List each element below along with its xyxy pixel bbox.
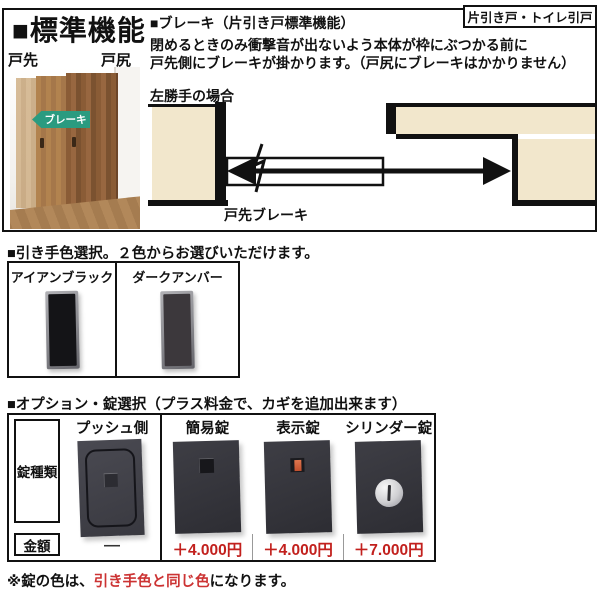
door-pull-mark <box>40 138 44 148</box>
handle-recess <box>48 294 77 367</box>
handle-option-iron-black: アイアンブラック <box>9 263 117 376</box>
simple-lock-image <box>173 440 241 534</box>
brake-diagram <box>140 96 600 228</box>
door-type-badge: 片引き戸・トイレ引戸 <box>463 5 597 28</box>
brake-tag-label: ブレーキ <box>45 112 87 127</box>
push-side-label: プッシュ側 <box>64 417 160 438</box>
right-jamb <box>512 134 518 200</box>
note-prefix: ※錠の色は、 <box>7 574 94 590</box>
lock-column-simple: 簡易錠 ＋4.000円 <box>162 415 253 560</box>
lock-option-heading: ■オプション・錠選択（プラス料金で、カギを追加出来ます） <box>7 393 406 414</box>
left-floor-line <box>148 200 228 206</box>
push-plate-ring <box>85 448 138 528</box>
push-button <box>103 472 117 486</box>
price-divider <box>252 534 253 560</box>
indicator-lock-image <box>264 440 332 534</box>
handle-option-dark-amber: ダークアンバー <box>117 263 238 376</box>
push-price: ― <box>64 537 160 555</box>
pocket-bottom-edge <box>396 134 518 139</box>
price-row-label: 金額 <box>14 533 60 556</box>
door-motion-ghost <box>36 76 70 210</box>
lock-thumbturn <box>199 458 214 473</box>
keyhole-slit <box>387 485 391 501</box>
push-plate-image <box>77 439 144 537</box>
note-suffix: になります。 <box>210 574 296 590</box>
right-wall-side <box>518 139 595 200</box>
handle-color-heading: ■引き手色選択。２色からお選びいただけます。 <box>7 242 319 263</box>
right-wall-top-edge <box>390 103 596 107</box>
note-highlight: 引き手色と同じ色 <box>94 574 210 590</box>
product-sheet: ■標準機能 片引き戸・トイレ引戸 ■ブレーキ（片引き戸標準機能） 閉めるときのみ… <box>0 0 600 600</box>
diagram-caption: 左勝手の場合 <box>150 86 234 106</box>
recessed-handle-image <box>45 291 80 370</box>
left-wall <box>152 105 215 200</box>
door-panel <box>66 73 118 213</box>
front-brake-label: 戸先ブレーキ <box>224 205 308 225</box>
page-title: ■標準機能 <box>12 9 146 49</box>
lock-name: 表示錠 <box>276 415 320 438</box>
handle-recess <box>163 294 192 367</box>
cylinder-lock-image <box>354 440 422 534</box>
left-jamb <box>215 102 226 200</box>
handle-option-label: アイアンブラック <box>9 263 115 286</box>
lock-columns: 簡易錠 ＋4.000円 表示錠 ＋4.000円 シリンダー錠 <box>162 415 434 560</box>
indicator-orange-bar <box>294 459 301 470</box>
lock-name: シリンダー錠 <box>345 415 432 438</box>
lock-name: 簡易錠 <box>186 415 230 438</box>
brake-arrow-tag: ブレーキ <box>32 111 90 128</box>
brake-description: 閉めるときのみ衝撃音が出ないよう本体が枠にぶつかる前に 戸先側にブレーキが掛かり… <box>150 37 575 72</box>
brake-description-line2: 戸先側にブレーキが掛かります。（戸尻にブレーキはかかりません） <box>150 55 575 73</box>
lock-option-table: 錠種類 金額 プッシュ側 ― 簡易錠 ＋4.000円 表示錠 <box>7 413 436 562</box>
lock-price: ＋7.000円 <box>354 533 424 560</box>
brake-heading: ■ブレーキ（片引き戸標準機能） <box>150 13 354 33</box>
handle-option-label: ダークアンバー <box>117 263 238 286</box>
right-wall-top <box>396 107 595 134</box>
lock-column-indicator: 表示錠 ＋4.000円 <box>253 415 344 560</box>
lock-color-note: ※錠の色は、引き手色と同じ色になります。 <box>7 570 295 591</box>
lock-type-row-label: 錠種類 <box>14 419 60 523</box>
lock-column-cylinder: シリンダー錠 ＋7.000円 <box>343 415 434 560</box>
brake-description-line1: 閉めるときのみ衝撃音が出ないよう本体が枠にぶつかる前に <box>150 37 575 55</box>
door-pull-mark <box>72 137 76 147</box>
lock-price: ＋4.000円 <box>172 533 242 560</box>
right-floor-line <box>512 200 596 206</box>
price-divider <box>343 534 344 560</box>
arrowhead-right <box>483 157 511 185</box>
lock-indicator-window <box>290 458 304 472</box>
lock-price: ＋4.000円 <box>263 533 333 560</box>
pocket-entry-jamb <box>386 103 396 134</box>
sliding-door-photo: ブレーキ <box>10 67 140 229</box>
handle-color-table: アイアンブラック ダークアンバー <box>7 261 240 378</box>
recessed-handle-image <box>160 291 195 370</box>
key-cylinder <box>374 479 403 508</box>
